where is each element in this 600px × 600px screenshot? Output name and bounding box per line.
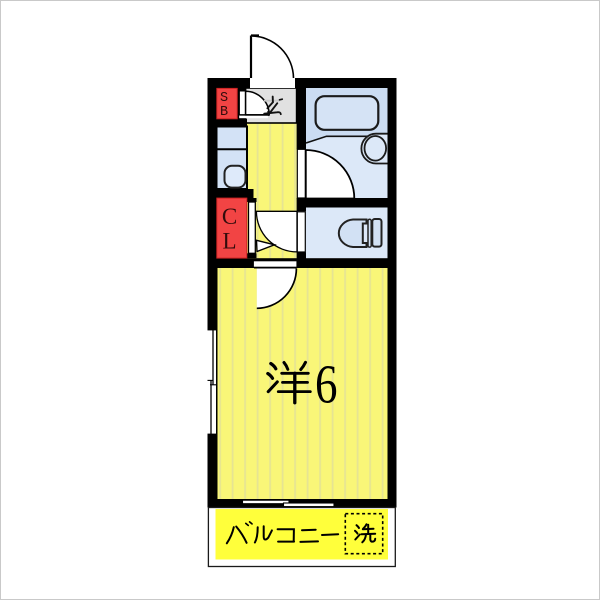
svg-text:S: S (220, 91, 228, 106)
svg-text:B: B (220, 105, 228, 120)
svg-text:L: L (222, 229, 236, 254)
svg-text:6: 6 (315, 354, 338, 415)
svg-text:C: C (222, 204, 237, 229)
